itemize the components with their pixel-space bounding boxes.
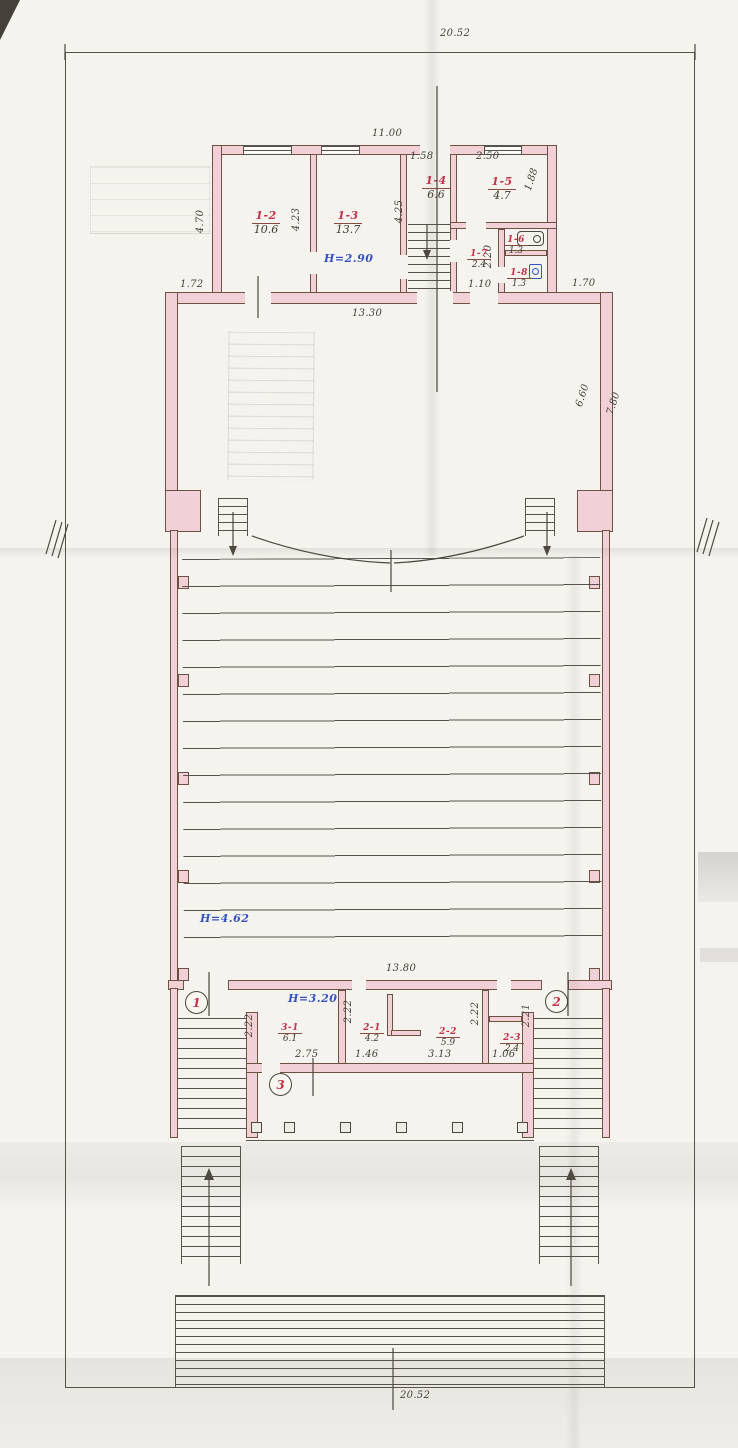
lower-rooms-bottom-wall — [246, 1063, 534, 1073]
porch-edge-line — [246, 1140, 534, 1141]
lower-right-wall — [602, 988, 610, 1138]
dim-out-right: 1.70 — [572, 278, 595, 289]
room-area: 1.3 — [504, 279, 534, 289]
dim-upper-width: 11.00 — [372, 128, 402, 139]
floor-plan: 20.52 20.52 11.00 1.58 2.50 1.88 4.70 4.… — [0, 0, 738, 1448]
scan-smudge-right-1 — [698, 852, 738, 902]
room-number: 1-4 — [422, 175, 449, 189]
upper-block-left-wall — [212, 145, 222, 304]
dim-r12-depth: 4.23 — [291, 208, 302, 231]
pilaster — [589, 968, 600, 981]
dim-site-bottom: 20.52 — [400, 1390, 430, 1401]
door-opening — [470, 291, 498, 305]
porch-column — [340, 1122, 351, 1133]
pilaster — [178, 968, 189, 981]
auditorium-row-lines — [182, 557, 602, 939]
room-label-1-8: 1-8 1.3 — [504, 261, 534, 290]
window — [321, 145, 360, 155]
room-area: 4.7 — [482, 190, 522, 203]
porch-column — [396, 1122, 407, 1133]
lower-left-wall — [170, 988, 178, 1138]
room-number: 1-8 — [507, 268, 531, 279]
dim-r21-width: 1.46 — [355, 1049, 378, 1060]
room-number: 2-2 — [436, 1027, 460, 1038]
dim-hall-bottom: 13.80 — [386, 963, 416, 974]
dim-r31-depth: 2.22 — [244, 1014, 255, 1037]
dim-r23-width: 1.06 — [492, 1049, 515, 1060]
height-note-hall: Н=4.62 — [200, 912, 249, 925]
door-opening — [262, 1062, 280, 1074]
room-area: 1.3 — [501, 246, 531, 256]
hall-right-corner — [577, 490, 613, 532]
door-opening — [352, 979, 366, 991]
hall-step-right — [525, 498, 555, 536]
room-area: 4.2 — [352, 1034, 392, 1044]
room-number: 1-7 — [467, 249, 491, 260]
room-label-3-1: 3-1 6.1 — [270, 1016, 310, 1045]
door-opening — [309, 252, 318, 274]
dim-hall-top: 13.30 — [352, 308, 382, 319]
partition-L-horizontal — [391, 1030, 421, 1036]
dim-stair-depth: 4.25 — [394, 200, 405, 223]
room-label-1-4: 1-4 6.6 — [414, 170, 458, 201]
door-opening — [466, 221, 486, 230]
room-label-1-2: 1-2 10.6 — [244, 205, 288, 236]
room-number: 1-6 — [504, 235, 528, 246]
room-label-2-1: 2-1 4.2 — [352, 1016, 392, 1045]
dim-r14-width: 1.58 — [410, 151, 433, 162]
room-area: 6.1 — [270, 1034, 310, 1044]
wall-r23-divider — [489, 1016, 522, 1022]
entrance-number: 3 — [276, 1078, 284, 1092]
room-label-1-3: 1-3 13.7 — [326, 205, 370, 236]
hall-left-corner — [165, 490, 201, 532]
dim-out-left: 1.72 — [180, 279, 203, 290]
door-opening — [497, 979, 511, 991]
exterior-stair-right — [539, 1146, 599, 1264]
dim-r22-width: 3.13 — [428, 1049, 451, 1060]
porch-column — [452, 1122, 463, 1133]
stair1-treads — [178, 1018, 246, 1136]
room-label-1-5: 1-5 4.7 — [482, 171, 522, 202]
exterior-stair-left — [181, 1146, 241, 1264]
height-note-upper: Н=2.90 — [324, 252, 373, 265]
door-opening — [245, 291, 271, 305]
entrance-marker-1: 1 — [185, 991, 208, 1014]
room-number: 3-1 — [278, 1023, 302, 1034]
gate-mark-right — [697, 518, 719, 556]
entrance-number: 1 — [192, 996, 200, 1010]
stairwell-treads — [408, 224, 450, 292]
dim-r31-width: 2.75 — [295, 1049, 318, 1060]
hall-step-left — [218, 498, 248, 536]
room-label-2-2: 2-2 5.9 — [428, 1020, 468, 1049]
lower-block-top-wall-main — [228, 980, 542, 990]
room-number: 1-5 — [488, 176, 515, 190]
room-area: 13.7 — [326, 224, 370, 237]
dim-r15-width: 2.50 — [476, 151, 499, 162]
door-opening — [449, 240, 458, 262]
dim-r22-depth: 2.22 — [470, 1002, 481, 1025]
porch-column — [284, 1122, 295, 1133]
hall-top-wall — [165, 292, 613, 304]
window — [243, 145, 292, 155]
wall-r22-r23 — [482, 990, 489, 1066]
height-note-lower: Н=3.20 — [288, 992, 337, 1005]
terrace-steps — [175, 1295, 605, 1388]
room-area: 6.6 — [414, 189, 458, 202]
entrance-marker-3: 3 — [269, 1073, 292, 1096]
scan-smudge-right-2 — [700, 948, 738, 962]
room-number: 2-3 — [500, 1033, 524, 1044]
auditorium-left-wall — [170, 530, 178, 988]
door-opening — [417, 291, 453, 305]
entrance-marker-2: 2 — [545, 990, 568, 1013]
room-number: 2-1 — [360, 1023, 384, 1034]
porch-pilaster — [251, 1122, 262, 1133]
dim-r23-depth: 2.21 — [521, 1004, 532, 1027]
room-area: 2.4 — [461, 260, 497, 270]
room-area: 10.6 — [244, 224, 288, 237]
scan-corner-fold — [0, 0, 20, 40]
room-number: 1-2 — [252, 210, 279, 224]
dim-r18-width: 1.10 — [468, 279, 491, 290]
room-label-1-6: 1-6 1.3 — [501, 228, 531, 257]
porch-pilaster — [517, 1122, 528, 1133]
room-label-1-7: 1-7 2.4 — [461, 242, 497, 271]
dim-r21-depth: 2.22 — [343, 1000, 354, 1023]
room-area: 5.9 — [428, 1038, 468, 1048]
door-opening — [399, 255, 408, 279]
stair2-treads — [534, 1018, 602, 1136]
room-number: 1-3 — [334, 210, 361, 224]
entrance-number: 2 — [552, 995, 560, 1009]
dim-site-top: 20.52 — [440, 28, 470, 39]
dim-upper-left: 4.70 — [195, 210, 206, 233]
auditorium-right-wall — [602, 530, 610, 988]
